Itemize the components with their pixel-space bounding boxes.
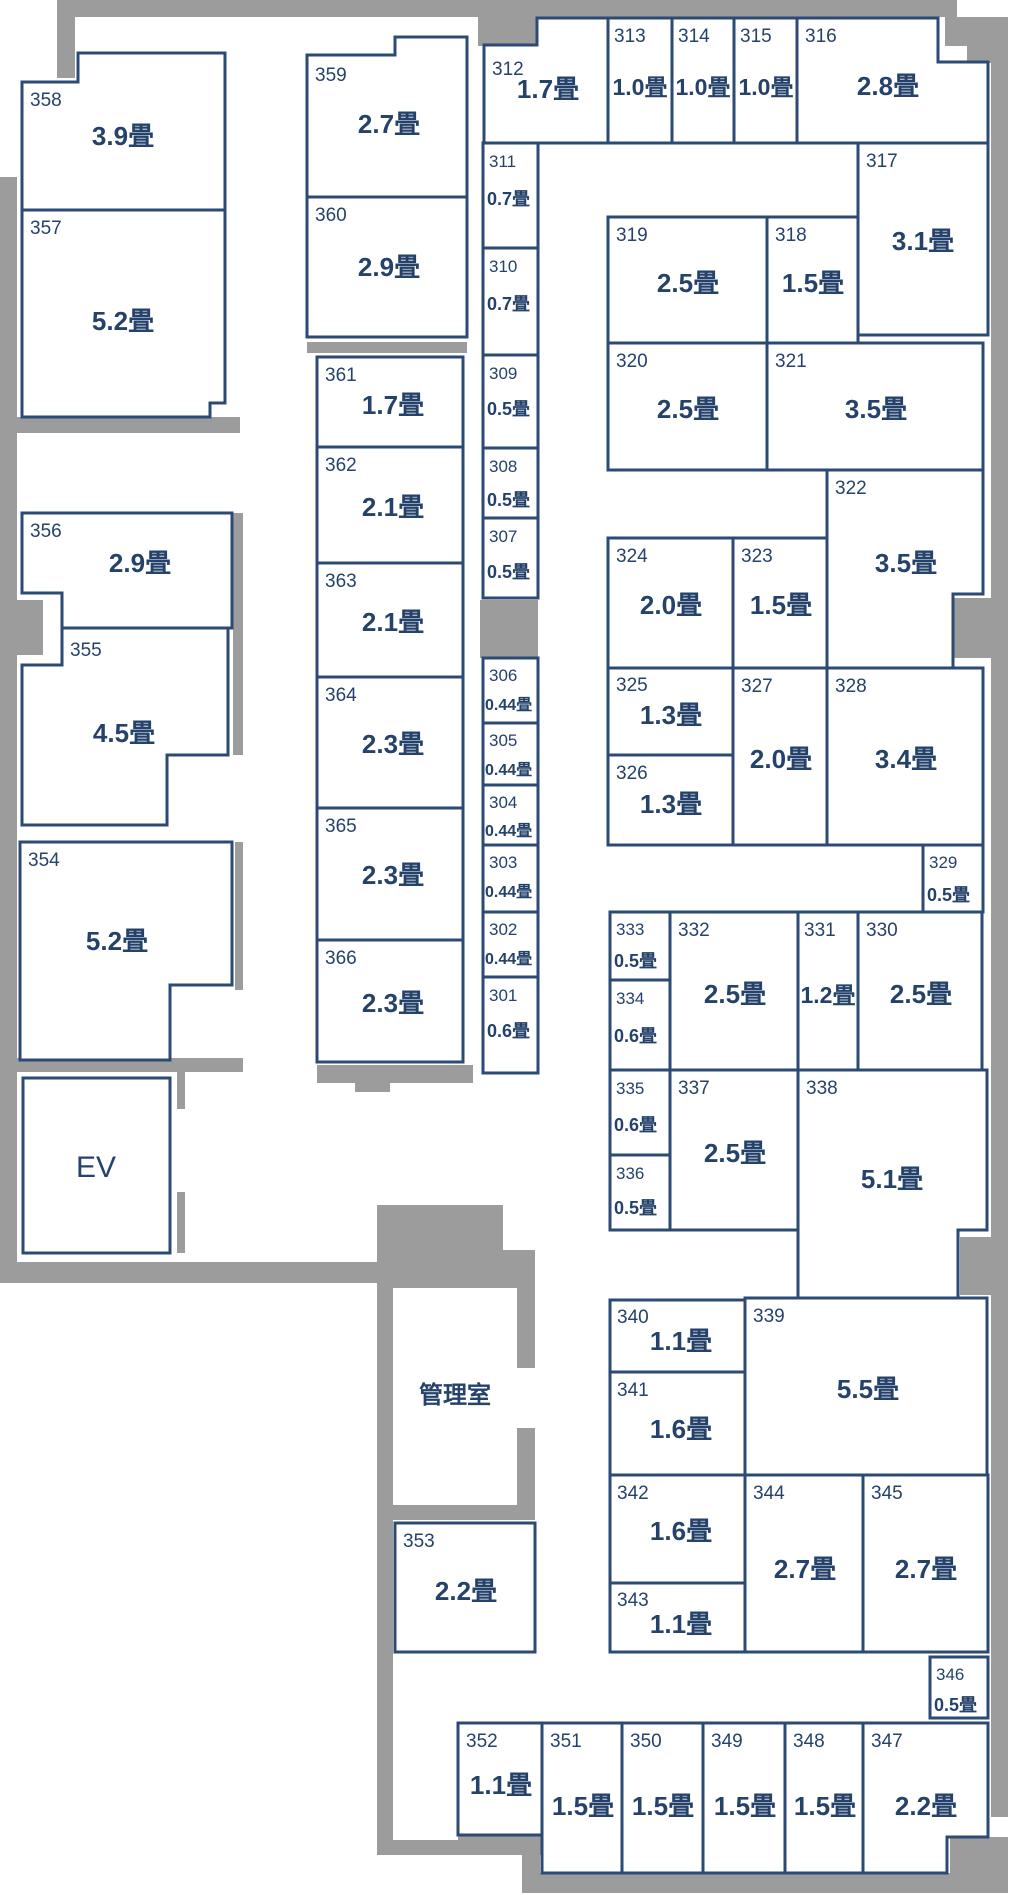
room-356[interactable]: 356 2.9畳: [22, 513, 232, 628]
room-number: 303: [489, 853, 517, 872]
room-348[interactable]: 348 1.5畳: [785, 1723, 863, 1873]
room-size: 1.7畳: [362, 390, 424, 420]
room-size: 3.9畳: [92, 121, 154, 151]
room-number: 365: [325, 816, 357, 837]
room-size: 5.5畳: [837, 1374, 899, 1404]
room-size: 0.44畳: [485, 883, 532, 901]
room-size: 1.5畳: [794, 1791, 856, 1821]
room-size: 1.1畳: [470, 1770, 532, 1800]
room-359[interactable]: 359 2.7畳: [307, 37, 467, 197]
room-number: 345: [871, 1483, 903, 1504]
room-318[interactable]: 318 1.5畳: [767, 217, 858, 343]
room-number: 362: [325, 455, 357, 476]
room-361[interactable]: 361 1.7畳: [317, 357, 463, 447]
room-size: 2.1畳: [362, 607, 424, 637]
room-301[interactable]: 301 0.6畳: [483, 977, 538, 1073]
room-size: 3.5畳: [875, 548, 937, 578]
room-354[interactable]: 354 5.2畳: [20, 842, 232, 1060]
floor-plan: 358 3.9畳 357 5.2畳 359 2.7畳 360 2.9畳 361 …: [0, 0, 1010, 1895]
room-number: 322: [835, 478, 867, 499]
room-number: 353: [403, 1531, 435, 1552]
room-size: 0.5畳: [487, 490, 530, 510]
room-size: 1.0畳: [676, 74, 731, 100]
room-number: 313: [614, 26, 646, 47]
room-size: 3.1畳: [892, 226, 954, 256]
room-size: 4.5畳: [93, 718, 155, 748]
room-351[interactable]: 351 1.5畳: [542, 1723, 622, 1873]
room-size: 2.8畳: [857, 71, 919, 101]
room-333[interactable]: 333 0.5畳: [610, 912, 670, 980]
room-number: 308: [489, 457, 517, 476]
room-number: 323: [741, 546, 773, 567]
wall-segment: [355, 1083, 390, 1092]
wall-segment: [991, 46, 1008, 598]
wall-segment: [177, 1192, 185, 1253]
wall-segment: [57, 0, 75, 78]
room-number: 301: [489, 986, 517, 1005]
wall-segment: [377, 1288, 393, 1855]
room-number: 315: [740, 26, 772, 47]
room-size: 5.2畳: [92, 306, 154, 336]
room-number: 358: [30, 90, 62, 111]
room-309[interactable]: 309 0.5畳: [483, 355, 538, 448]
room-size: 0.6畳: [487, 1021, 530, 1041]
room-308[interactable]: 308 0.5畳: [483, 448, 538, 518]
room-number: 360: [315, 205, 347, 226]
room-number: 354: [28, 850, 60, 871]
room-number: 317: [866, 151, 898, 172]
wall-segment: [0, 1262, 377, 1283]
room-number: 341: [617, 1380, 649, 1401]
wall-segment: [0, 655, 17, 1262]
room-size: 0.7畳: [487, 189, 530, 209]
room-size: 0.5畳: [927, 885, 970, 905]
room-328[interactable]: 328 3.4畳: [827, 668, 983, 845]
room-size: 0.44畳: [485, 822, 532, 840]
room-size: 1.6畳: [650, 1414, 712, 1444]
room-number: 346: [936, 1665, 964, 1684]
room-number: 333: [616, 920, 644, 939]
room-335[interactable]: 335 0.6畳: [610, 1070, 670, 1155]
room-341[interactable]: 341 1.6畳: [610, 1372, 745, 1475]
room-number: 321: [775, 351, 807, 372]
room-number: 352: [466, 1731, 498, 1752]
room-size: 0.5畳: [934, 1695, 977, 1715]
room-number: 363: [325, 571, 357, 592]
room-310[interactable]: 310 0.7畳: [483, 248, 538, 355]
room-307[interactable]: 307 0.5畳: [483, 518, 538, 598]
room-number: 342: [617, 1483, 649, 1504]
room-332[interactable]: 332 2.5畳: [670, 912, 798, 1070]
room-size: 1.1畳: [650, 1326, 712, 1356]
wall-segment: [233, 513, 243, 755]
room-number: 351: [550, 1731, 582, 1752]
room-338[interactable]: 338 5.1畳: [798, 1070, 987, 1298]
room-337[interactable]: 337 2.5畳: [670, 1070, 798, 1230]
room-size: 2.7畳: [774, 1554, 836, 1584]
room-size: 2.3畳: [362, 988, 424, 1018]
room-number: 318: [775, 225, 807, 246]
room-size: 2.9畳: [109, 548, 171, 578]
wall-segment: [17, 417, 240, 433]
room-size: 1.3畳: [640, 789, 702, 819]
room-number: 310: [489, 257, 517, 276]
room-366[interactable]: 366 2.3畳: [317, 940, 463, 1062]
room-number: 364: [325, 685, 357, 706]
room-number: 339: [753, 1306, 785, 1327]
room-349[interactable]: 349 1.5畳: [703, 1723, 785, 1873]
room-size: 1.0畳: [613, 74, 668, 100]
room-306[interactable]: 306 0.44畳: [483, 658, 538, 723]
room-number: 304: [489, 793, 517, 812]
room-305[interactable]: 305 0.44畳: [483, 723, 538, 785]
room-number: 359: [315, 65, 347, 86]
wall-segment: [478, 17, 537, 46]
wall-segment: [991, 658, 1008, 1237]
wall-segment: [480, 600, 538, 658]
room-345[interactable]: 345 2.7畳: [863, 1475, 988, 1652]
room-number: 306: [489, 666, 517, 685]
room-324[interactable]: 324 2.0畳: [608, 538, 733, 668]
room-size: 0.7畳: [487, 294, 530, 314]
room-353[interactable]: 353 2.2畳: [395, 1523, 535, 1652]
room-size: 2.5畳: [890, 979, 952, 1009]
room-343[interactable]: 343 1.1畳: [610, 1583, 745, 1652]
wall-segment: [377, 1505, 535, 1520]
room-304[interactable]: 304 0.44畳: [483, 785, 538, 845]
room-number: 307: [489, 527, 517, 546]
room-size: 2.3畳: [362, 860, 424, 890]
room-329[interactable]: 329 0.5畳: [923, 845, 983, 912]
room-number: 309: [489, 364, 517, 383]
room-number: 314: [678, 26, 710, 47]
room-number: 305: [489, 731, 517, 750]
room-355[interactable]: 355 4.5畳: [22, 628, 228, 825]
room-357[interactable]: 357 5.2畳: [22, 210, 225, 417]
room-size: 2.5畳: [704, 979, 766, 1009]
room-size: 2.7畳: [895, 1554, 957, 1584]
room-number: 332: [678, 920, 710, 941]
room-size: 1.2畳: [801, 982, 856, 1008]
room-303[interactable]: 303 0.44畳: [483, 845, 538, 912]
room-office[interactable]: 管理室: [393, 1288, 517, 1505]
room-number: 361: [325, 365, 357, 386]
wall-segment: [517, 1428, 535, 1505]
office-label: 管理室: [419, 1381, 491, 1409]
room-size: 2.9畳: [358, 252, 420, 282]
room-358[interactable]: 358 3.9畳: [22, 53, 225, 210]
room-size: 3.5畳: [845, 394, 907, 424]
room-size: 0.6畳: [614, 1026, 657, 1046]
room-ev[interactable]: EV: [23, 1078, 170, 1253]
room-336[interactable]: 336 0.5畳: [610, 1155, 670, 1230]
wall-segment: [540, 1873, 1008, 1893]
room-363[interactable]: 363 2.1畳: [317, 563, 463, 677]
room-number: 324: [616, 546, 648, 567]
room-number: 326: [616, 763, 648, 784]
room-number: 320: [616, 351, 648, 372]
wall-segment: [458, 1835, 542, 1855]
room-342[interactable]: 342 1.6畳: [610, 1475, 745, 1583]
room-size: 2.2畳: [895, 1791, 957, 1821]
room-number: 366: [325, 948, 357, 969]
room-340[interactable]: 340 1.1畳: [610, 1300, 745, 1372]
room-size: 1.6畳: [650, 1516, 712, 1546]
wall-segment: [317, 1065, 473, 1083]
wall-segment: [945, 17, 1008, 46]
wall-segment: [177, 1065, 185, 1109]
wall-segment: [0, 600, 43, 655]
room-331[interactable]: 331 1.2畳: [798, 912, 858, 1070]
room-size: 1.7畳: [517, 74, 579, 104]
room-size: 0.6畳: [614, 1115, 657, 1135]
room-size: 0.5畳: [487, 399, 530, 419]
room-315[interactable]: 315 1.0畳: [734, 18, 797, 143]
room-314[interactable]: 314 1.0畳: [672, 18, 734, 143]
room-size: 1.5畳: [552, 1791, 614, 1821]
room-number: 347: [871, 1731, 903, 1752]
room-size: 1.5畳: [632, 1791, 694, 1821]
room-number: 356: [30, 521, 62, 542]
room-number: 349: [711, 1731, 743, 1752]
room-size: 2.5畳: [657, 394, 719, 424]
room-size: 1.5畳: [750, 590, 812, 620]
room-number: 355: [70, 640, 102, 661]
room-number: 337: [678, 1078, 710, 1099]
room-311[interactable]: 311 0.7畳: [483, 143, 538, 248]
room-364[interactable]: 364 2.3畳: [317, 677, 463, 808]
room-321[interactable]: 321 3.5畳: [767, 343, 983, 470]
room-size: 2.5畳: [657, 268, 719, 298]
room-size: 2.0畳: [750, 744, 812, 774]
room-number: 343: [617, 1590, 649, 1611]
room-339[interactable]: 339 5.5畳: [745, 1298, 987, 1475]
room-size: 0.44畳: [485, 696, 532, 714]
room-number: 336: [616, 1164, 644, 1183]
room-size: 0.44畳: [485, 761, 532, 779]
room-number: 338: [806, 1078, 838, 1099]
room-number: 348: [793, 1731, 825, 1752]
room-size: 2.2畳: [435, 1576, 497, 1606]
room-number: 331: [804, 920, 836, 941]
wall-segment: [235, 842, 243, 990]
room-size: 1.3畳: [640, 700, 702, 730]
room-334[interactable]: 334 0.6畳: [610, 980, 670, 1070]
room-362[interactable]: 362 2.1畳: [317, 447, 463, 563]
wall-segment: [393, 1250, 535, 1288]
room-size: 5.2畳: [86, 926, 148, 956]
room-number: 319: [616, 225, 648, 246]
room-size: 2.0畳: [640, 590, 702, 620]
room-size: 0.44畳: [485, 950, 532, 968]
room-352[interactable]: 352 1.1畳: [458, 1723, 542, 1835]
room-number: 334: [616, 989, 644, 1008]
room-size: 2.7畳: [358, 109, 420, 139]
room-number: 335: [616, 1079, 644, 1098]
room-330[interactable]: 330 2.5畳: [858, 912, 982, 1070]
rooms: 358 3.9畳 357 5.2畳 359 2.7畳 360 2.9畳 361 …: [20, 18, 988, 1873]
room-number: 350: [630, 1731, 662, 1752]
room-344[interactable]: 344 2.7畳: [745, 1475, 863, 1652]
room-number: 357: [30, 218, 62, 239]
room-size: 1.5畳: [782, 268, 844, 298]
room-size: 3.4畳: [875, 744, 937, 774]
room-365[interactable]: 365 2.3畳: [317, 808, 463, 940]
room-317[interactable]: 317 3.1畳: [858, 143, 988, 335]
room-302[interactable]: 302 0.44畳: [483, 912, 538, 977]
wall-segment: [0, 177, 17, 600]
room-323[interactable]: 323 1.5畳: [733, 538, 827, 668]
wall-segment: [57, 0, 957, 17]
room-number: 329: [929, 853, 957, 872]
room-number: 311: [489, 152, 516, 171]
wall-segment: [307, 342, 467, 353]
room-number: 327: [741, 676, 773, 697]
room-number: 328: [835, 676, 867, 697]
wall-segment: [953, 598, 1008, 658]
room-325[interactable]: 325 1.3畳: [608, 668, 733, 755]
room-320[interactable]: 320 2.5畳: [608, 343, 767, 470]
room-360[interactable]: 360 2.9畳: [307, 197, 467, 337]
room-319[interactable]: 319 2.5畳: [608, 217, 767, 343]
room-size: 2.3畳: [362, 729, 424, 759]
room-size: 1.0畳: [739, 74, 794, 100]
room-size: 0.5畳: [487, 562, 530, 582]
floor-plan-canvas: 358 3.9畳 357 5.2畳 359 2.7畳 360 2.9畳 361 …: [0, 0, 1010, 1895]
room-size: 2.5畳: [704, 1138, 766, 1168]
room-number: 325: [616, 675, 648, 696]
room-number: 316: [805, 26, 837, 47]
wall-segment: [991, 1295, 1008, 1817]
wall-segment: [960, 1237, 1008, 1295]
room-number: 340: [617, 1307, 649, 1328]
room-size: 5.1畳: [861, 1164, 923, 1194]
room-346[interactable]: 346 0.5畳: [930, 1657, 988, 1718]
room-size: 0.5畳: [614, 1198, 657, 1218]
room-number: 330: [866, 920, 898, 941]
room-326[interactable]: 326 1.3畳: [608, 755, 733, 845]
room-size: 1.1畳: [650, 1609, 712, 1639]
room-327[interactable]: 327 2.0畳: [733, 668, 827, 845]
room-number: 302: [489, 920, 517, 939]
wall-segment: [517, 1288, 535, 1368]
room-size: 2.1畳: [362, 492, 424, 522]
room-313[interactable]: 313 1.0畳: [608, 18, 672, 143]
room-size: 1.5畳: [714, 1791, 776, 1821]
room-number: 344: [753, 1483, 785, 1504]
elevator-label: EV: [76, 1151, 116, 1184]
room-size: 0.5畳: [614, 951, 657, 971]
room-350[interactable]: 350 1.5畳: [622, 1723, 703, 1873]
